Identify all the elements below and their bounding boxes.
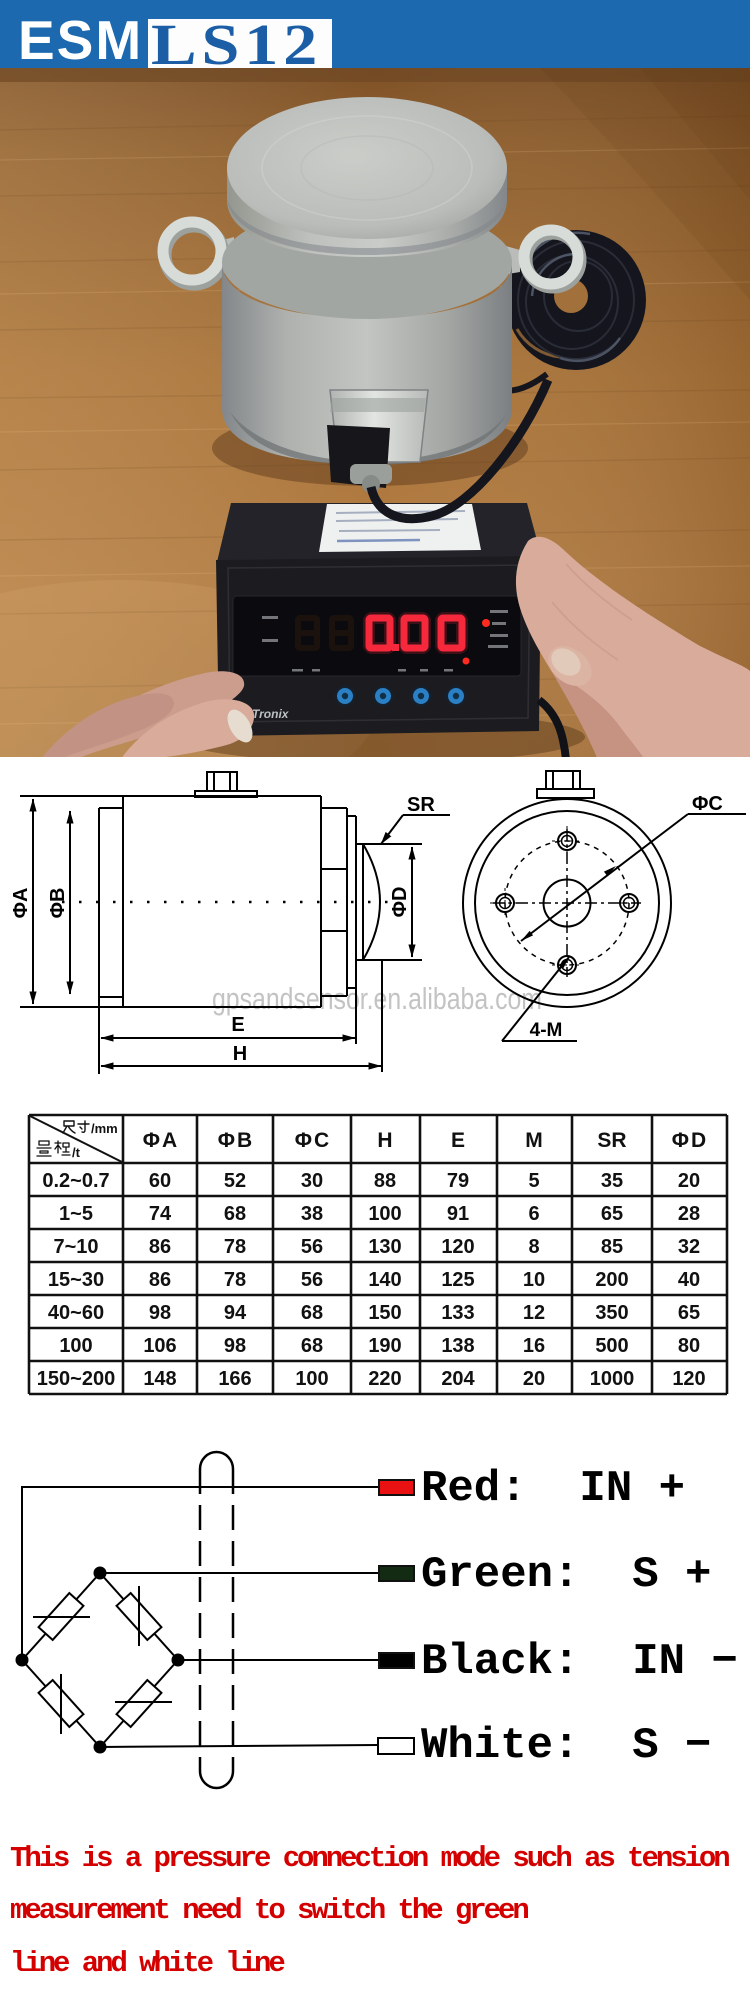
svg-text:ΦD: ΦD: [389, 887, 411, 918]
svg-text:68: 68: [301, 1302, 323, 1324]
svg-text:133: 133: [441, 1302, 474, 1324]
svg-text:16: 16: [523, 1335, 545, 1357]
svg-text:56: 56: [301, 1236, 323, 1258]
svg-text:98: 98: [224, 1335, 246, 1357]
svg-text:H: H: [377, 1129, 392, 1152]
svg-text:12: 12: [523, 1302, 545, 1324]
svg-text:M: M: [525, 1129, 543, 1152]
svg-text:Green: S +: Green: S +: [421, 1550, 711, 1600]
svg-text:100: 100: [59, 1335, 92, 1357]
svg-text:30: 30: [301, 1170, 323, 1192]
svg-text:94: 94: [224, 1302, 247, 1324]
svg-text:148: 148: [143, 1368, 176, 1390]
svg-text:/t: /t: [72, 1145, 81, 1160]
svg-text:40~60: 40~60: [48, 1302, 104, 1324]
svg-text:100: 100: [368, 1203, 401, 1225]
svg-text:Black: IN −: Black: IN −: [421, 1637, 738, 1687]
svg-text:38: 38: [301, 1203, 323, 1225]
svg-text:91: 91: [447, 1203, 469, 1225]
svg-text:SR: SR: [407, 794, 435, 816]
svg-text:125: 125: [441, 1269, 474, 1291]
svg-text:78: 78: [224, 1269, 246, 1291]
svg-text:106: 106: [143, 1335, 176, 1357]
svg-text:100: 100: [295, 1368, 328, 1390]
svg-text:ΦC: ΦC: [295, 1129, 329, 1152]
svg-text:68: 68: [301, 1335, 323, 1357]
svg-text:White: S −: White: S −: [421, 1721, 711, 1771]
svg-text:52: 52: [224, 1170, 246, 1192]
svg-text:85: 85: [601, 1236, 623, 1258]
svg-text:28: 28: [678, 1203, 700, 1225]
svg-text:0.2~0.7: 0.2~0.7: [42, 1170, 109, 1192]
svg-text:220: 220: [368, 1368, 401, 1390]
svg-text:56: 56: [301, 1269, 323, 1291]
svg-text:ΦD: ΦD: [672, 1129, 706, 1152]
svg-text:4-M: 4-M: [530, 1020, 563, 1041]
svg-text:ΦA: ΦA: [10, 888, 32, 919]
svg-text:20: 20: [678, 1170, 700, 1192]
svg-text:ΦB: ΦB: [218, 1129, 252, 1152]
svg-text:35: 35: [601, 1170, 623, 1192]
svg-text:68: 68: [224, 1203, 246, 1225]
svg-text:166: 166: [218, 1368, 251, 1390]
svg-text:88: 88: [374, 1170, 396, 1192]
svg-text:350: 350: [595, 1302, 628, 1324]
svg-text:E: E: [451, 1129, 465, 1152]
svg-text:gpsandsensor.en.alibaba.com: gpsandsensor.en.alibaba.com: [212, 981, 542, 1016]
svg-text:ΦC: ΦC: [692, 793, 723, 815]
svg-text:140: 140: [368, 1269, 401, 1291]
svg-text:86: 86: [149, 1236, 171, 1258]
svg-text:40: 40: [678, 1269, 700, 1291]
svg-text:500: 500: [595, 1335, 628, 1357]
svg-text:200: 200: [595, 1269, 628, 1291]
svg-text:74: 74: [149, 1203, 172, 1225]
svg-text:120: 120: [672, 1368, 705, 1390]
svg-text:H: H: [233, 1043, 247, 1065]
svg-text:130: 130: [368, 1236, 401, 1258]
svg-text:150~200: 150~200: [37, 1368, 115, 1390]
svg-text:Red: IN +: Red: IN +: [421, 1464, 685, 1514]
svg-text:190: 190: [368, 1335, 401, 1357]
svg-text:ΦB: ΦB: [47, 888, 69, 919]
svg-text:10: 10: [523, 1269, 545, 1291]
svg-text:65: 65: [678, 1302, 700, 1324]
svg-text:SR: SR: [597, 1129, 626, 1152]
svg-text:1~5: 1~5: [59, 1203, 93, 1225]
svg-text:ΦA: ΦA: [143, 1129, 177, 1152]
svg-text:1000: 1000: [590, 1368, 635, 1390]
svg-text:E: E: [231, 1014, 244, 1036]
svg-text:Tronix: Tronix: [252, 707, 290, 721]
svg-text:6: 6: [528, 1203, 539, 1225]
svg-text:138: 138: [441, 1335, 474, 1357]
svg-text:8: 8: [528, 1236, 539, 1258]
svg-text:20: 20: [523, 1368, 545, 1390]
svg-text:120: 120: [441, 1236, 474, 1258]
svg-text:78: 78: [224, 1236, 246, 1258]
svg-text:98: 98: [149, 1302, 171, 1324]
svg-text:86: 86: [149, 1269, 171, 1291]
svg-text:15~30: 15~30: [48, 1269, 104, 1291]
svg-text:5: 5: [528, 1170, 539, 1192]
svg-text:150: 150: [368, 1302, 401, 1324]
svg-text:79: 79: [447, 1170, 469, 1192]
svg-text:204: 204: [441, 1368, 475, 1390]
svg-text:60: 60: [149, 1170, 171, 1192]
svg-text:7~10: 7~10: [53, 1236, 98, 1258]
svg-text:/mm: /mm: [91, 1121, 118, 1136]
svg-text:65: 65: [601, 1203, 623, 1225]
svg-text:80: 80: [678, 1335, 700, 1357]
svg-text:32: 32: [678, 1236, 700, 1258]
